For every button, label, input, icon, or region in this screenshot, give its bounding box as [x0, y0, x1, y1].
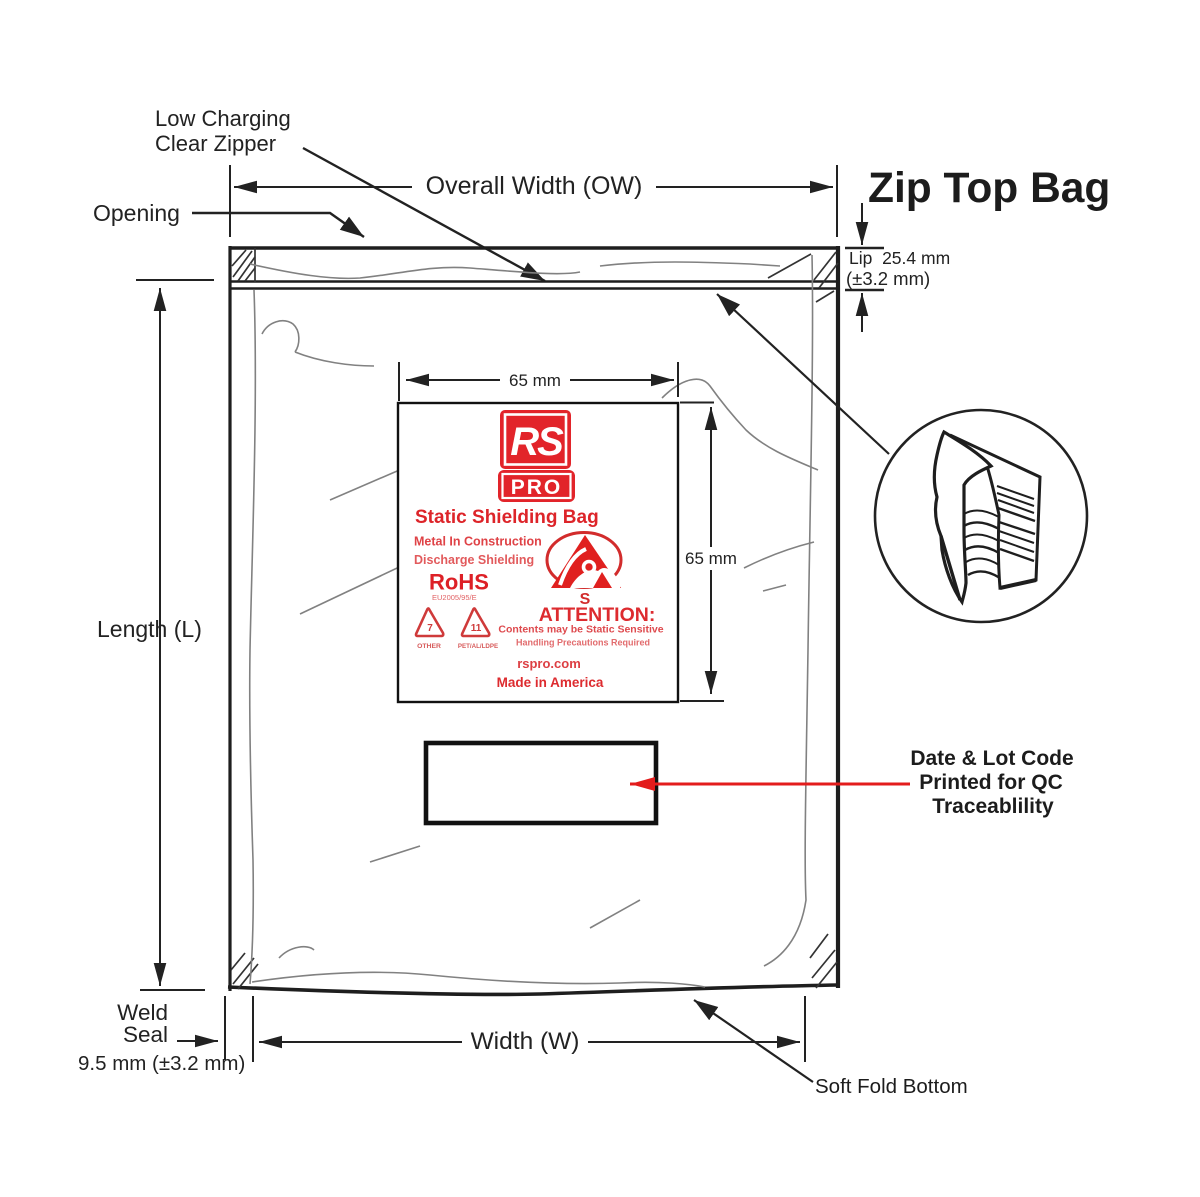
svg-text:65 mm: 65 mm — [685, 549, 737, 568]
svg-text:11: 11 — [471, 623, 482, 634]
svg-text:Made in America: Made in America — [497, 675, 604, 690]
svg-text:Low Charging: Low Charging — [155, 106, 291, 131]
svg-text:7: 7 — [427, 623, 433, 634]
svg-text:Handling Precautions Required: Handling Precautions Required — [516, 638, 650, 648]
svg-text:Zip Top Bag: Zip Top Bag — [868, 165, 1110, 212]
svg-text:(±3.2 mm): (±3.2 mm) — [846, 268, 930, 289]
svg-text:Metal In Construction: Metal In Construction — [414, 535, 542, 549]
svg-text:EU2005/95/E: EU2005/95/E — [432, 593, 477, 602]
svg-text:Contents may be Static Sensiti: Contents may be Static Sensitive — [498, 624, 663, 636]
svg-text:Static Shielding Bag: Static Shielding Bag — [415, 507, 599, 528]
svg-text:PRO: PRO — [511, 476, 563, 499]
svg-text:Overall Width (OW): Overall Width (OW) — [426, 172, 643, 200]
svg-text:Clear Zipper: Clear Zipper — [155, 131, 276, 156]
svg-text:OTHER: OTHER — [417, 643, 441, 650]
svg-text:Discharge Shielding: Discharge Shielding — [414, 553, 534, 567]
svg-text:Lip 25.4 mm: Lip 25.4 mm — [849, 248, 950, 268]
svg-text:Date & Lot Code: Date & Lot Code — [910, 747, 1073, 770]
svg-text:9.5 mm (±3.2 mm): 9.5 mm (±3.2 mm) — [78, 1052, 245, 1075]
svg-text:65 mm: 65 mm — [509, 371, 561, 390]
svg-text:Traceablility: Traceablility — [932, 795, 1054, 818]
svg-text:Width (W): Width (W) — [471, 1028, 580, 1055]
svg-text:Printed for QC: Printed for QC — [919, 771, 1063, 794]
svg-text:Seal: Seal — [123, 1022, 168, 1047]
svg-text:RoHS: RoHS — [429, 570, 489, 595]
svg-text:Length (L): Length (L) — [97, 616, 202, 642]
svg-text:Opening: Opening — [93, 200, 180, 226]
svg-text:rspro.com: rspro.com — [517, 656, 581, 671]
svg-text:RS: RS — [510, 420, 564, 464]
svg-text:Soft Fold Bottom: Soft Fold Bottom — [815, 1075, 968, 1098]
svg-text:PET/AL/LDPE: PET/AL/LDPE — [458, 643, 498, 650]
